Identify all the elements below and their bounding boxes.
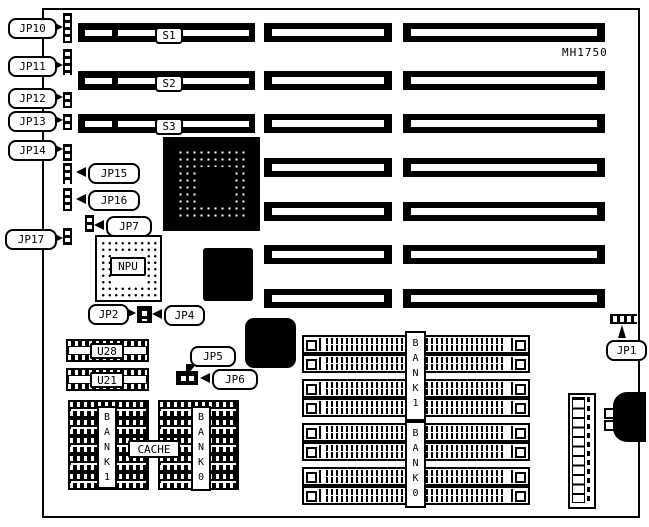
bga-center [196,167,232,203]
simm-clip [515,447,526,458]
simm-clip [515,384,526,395]
slot-window [272,208,384,215]
slot-window [411,120,597,127]
u28-label: U28 [90,343,124,359]
simm-clip [319,445,321,458]
simm-clip [319,382,321,395]
keyboard-connector-pin [604,408,615,419]
simm-clip [319,401,321,414]
callout-jp7: JP7 [106,216,152,237]
slot-window [411,164,597,171]
slot-window [411,295,597,302]
simm-clip [306,491,317,502]
simm-clip [319,338,321,351]
slot-window [85,30,112,36]
simm-clip [515,340,526,351]
slot-window [272,164,384,171]
isa-slot-s3-right [403,114,605,133]
slot-label-s1: S1 [155,27,183,44]
callout-jp11: JP11 [8,56,57,77]
simm-bank0-label: B A N K 0 [405,421,426,508]
jumper-block-jp17 [63,228,72,245]
npu-label: NPU [110,257,146,276]
jumper-block-jp15 [63,163,72,184]
simm-clip [306,359,317,370]
simm-clip [306,447,317,458]
simm-clip [511,357,513,370]
simm-clip [515,472,526,483]
isa-slot-right [403,289,605,308]
simm-clip [511,470,513,483]
jumper-block-jp12 [63,92,72,108]
slot-window [118,78,249,84]
simm-clip [306,403,317,414]
slot-window [85,121,112,127]
simm-clip [515,403,526,414]
pointer-arrow [618,325,626,338]
power-connector [568,393,596,509]
slot-window [272,29,384,36]
keyboard-connector-pin [604,420,615,431]
simm-bank1-label: B A N K 1 [405,331,426,421]
simm-clip [511,426,513,439]
simm-clip [319,470,321,483]
cache-bank1-label: B A N K 1 [97,406,117,489]
callout-jp2: JP2 [88,304,129,325]
slot-window [118,30,249,36]
simm-clip [511,401,513,414]
motherboard-diagram: MH1750 S1 S2 S3 [0,0,649,527]
isa-slot-mid [264,289,392,308]
jumper-block-jp1 [610,314,637,324]
isa-slot-s2-right [403,71,605,90]
slot-label-s3: S3 [155,118,183,135]
isa-slot-s3-mid [264,114,392,133]
callout-jp15: JP15 [88,163,140,184]
controller-chip [203,248,253,301]
simm-clip [319,426,321,439]
callout-jp13: JP13 [8,111,57,132]
pointer-arrow [200,373,210,383]
isa-slot-right [403,158,605,177]
simm-clip [319,489,321,502]
simm-clip [319,357,321,370]
simm-clip [515,428,526,439]
pointer-arrow [76,194,86,204]
callout-jp1: JP1 [606,340,647,361]
simm-clip [511,382,513,395]
slot-window [85,78,112,84]
pointer-arrow [76,167,86,177]
pointer-arrow [94,220,104,230]
controller-chip [245,318,296,368]
isa-slot-s1-mid [264,23,392,42]
simm-clip [306,340,317,351]
u21-label: U21 [90,372,124,388]
cache-bank0-label: B A N K 0 [191,406,211,491]
isa-slot-mid [264,202,392,221]
jumper-block-jp14 [63,144,72,161]
cache-label: CACHE [128,440,180,458]
slot-window [411,29,597,36]
simm-clip [511,445,513,458]
isa-slot-right [403,202,605,221]
callout-jp16: JP16 [88,190,140,211]
isa-slot-s2-mid [264,71,392,90]
board-model-label: MH1750 [562,46,608,59]
callout-jp10: JP10 [8,18,57,39]
chipset-bga-chip [163,137,260,231]
simm-clip [306,384,317,395]
slot-window [411,251,597,258]
simm-clip [515,359,526,370]
jumper-block-jp11 [63,49,72,75]
callout-jp6: JP6 [212,369,258,390]
simm-clip [306,428,317,439]
slot-window [411,208,597,215]
jumper-block-jp2-jp4 [137,306,152,323]
callout-jp12: JP12 [8,88,57,109]
slot-window [272,251,384,258]
power-pins [587,397,590,501]
isa-slot-mid [264,245,392,264]
slot-window [272,77,384,84]
keyboard-din-connector [613,392,646,442]
callout-jp5: JP5 [190,346,236,367]
power-pins [572,397,585,503]
callout-jp17: JP17 [5,229,57,250]
isa-slot-s1-right [403,23,605,42]
slot-window [411,77,597,84]
jumper-block-jp16 [63,188,72,211]
jumper-block-jp7 [85,215,94,232]
simm-clip [306,472,317,483]
jumper-block-jp10 [63,13,72,43]
jumper-block-jp13 [63,114,72,130]
isa-slot-right [403,245,605,264]
callout-jp14: JP14 [8,140,57,161]
slot-window [118,121,249,127]
simm-clip [511,338,513,351]
pointer-arrow [152,309,162,319]
simm-clip [515,491,526,502]
slot-window [272,295,384,302]
slot-label-s2: S2 [155,75,183,92]
slot-window [272,120,384,127]
callout-jp4: JP4 [164,305,205,326]
simm-clip [511,489,513,502]
isa-slot-mid [264,158,392,177]
